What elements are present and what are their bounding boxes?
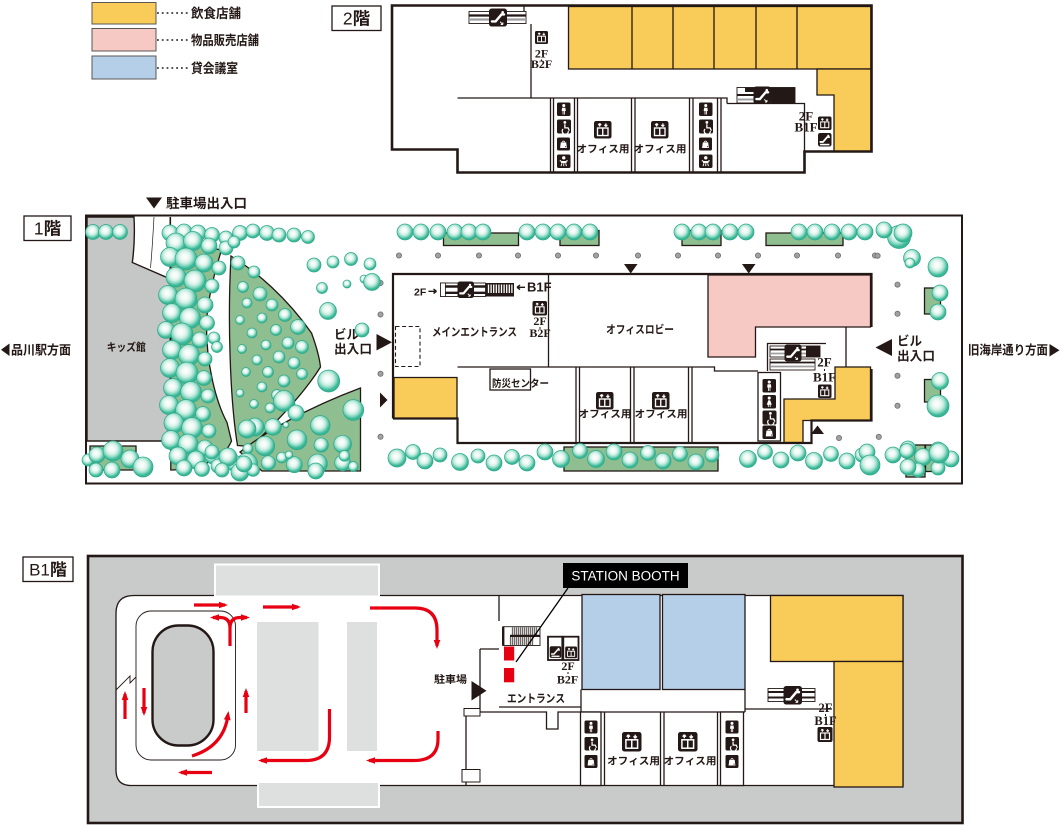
svg-text:2F: 2F <box>561 659 574 673</box>
svg-text:B1F: B1F <box>794 120 817 135</box>
svg-text:メインエントランス: メインエントランス <box>432 324 517 340</box>
svg-text:2F: 2F <box>414 285 427 300</box>
svg-text:オフィス用: オフィス用 <box>579 407 632 422</box>
svg-text:B1F: B1F <box>813 370 836 385</box>
svg-text:出入口: 出入口 <box>897 346 935 365</box>
svg-text:オフィス用: オフィス用 <box>664 754 717 769</box>
svg-text:1階: 1階 <box>34 216 62 241</box>
svg-text:STATION BOOTH: STATION BOOTH <box>571 569 679 584</box>
svg-text:品川駅方面: 品川駅方面 <box>11 340 71 359</box>
svg-text:オフィス用: オフィス用 <box>607 754 660 769</box>
svg-text:オフィス用: オフィス用 <box>577 142 630 157</box>
svg-text:B1F: B1F <box>527 277 552 296</box>
svg-text:B2F: B2F <box>557 673 578 687</box>
svg-text:旧海岸通り方面: 旧海岸通り方面 <box>968 340 1048 359</box>
svg-text:貸会議室: 貸会議室 <box>191 57 238 77</box>
svg-text:エントランス: エントランス <box>507 691 565 707</box>
svg-text:オフィス用: オフィス用 <box>635 407 688 422</box>
svg-text:B2F: B2F <box>531 57 552 71</box>
svg-text:2F: 2F <box>817 355 832 370</box>
svg-text:出入口: 出入口 <box>334 339 372 358</box>
svg-text:駐車場: 駐車場 <box>434 672 468 687</box>
svg-text:B1F: B1F <box>814 714 837 728</box>
svg-text:2階: 2階 <box>343 6 371 31</box>
svg-text:オフィス用: オフィス用 <box>634 142 687 157</box>
svg-text:防災センター: 防災センター <box>492 376 549 391</box>
svg-text:オフィスロビー: オフィスロビー <box>606 322 674 338</box>
svg-text:飲食店舗: 飲食店舗 <box>191 2 241 22</box>
svg-text:物品販売店舗: 物品販売店舗 <box>191 29 259 49</box>
svg-text:B2F: B2F <box>529 326 550 340</box>
svg-text:B1階: B1階 <box>29 556 67 581</box>
svg-text:2F: 2F <box>819 701 833 715</box>
svg-text:駐車場出入口: 駐車場出入口 <box>166 192 247 212</box>
svg-text:キッズ館: キッズ館 <box>107 339 146 355</box>
